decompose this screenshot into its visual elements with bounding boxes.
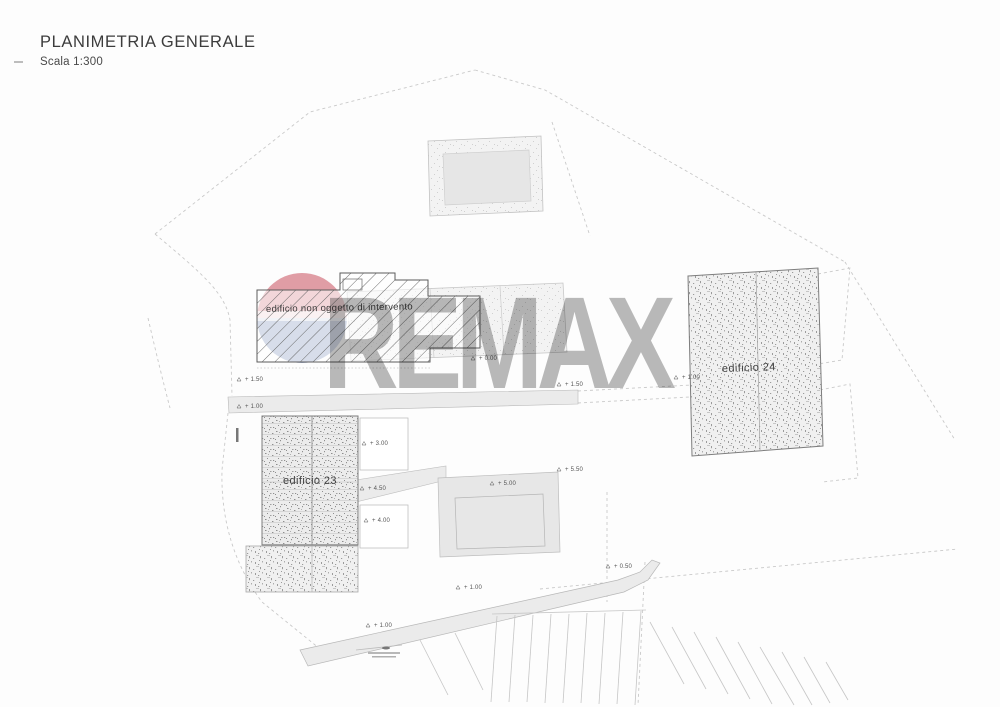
parcel-boundary-lines <box>148 70 958 705</box>
elevation-marker: + 0.50 <box>614 564 633 570</box>
elevation-marker: + 5.00 <box>498 481 517 487</box>
elevation-marker: + 1.00 <box>682 375 701 381</box>
elevation-marker-triangle <box>471 357 475 361</box>
elevation-marker: + 1.00 <box>374 623 393 629</box>
elevation-marker: + 1.00 <box>464 585 483 591</box>
elevation-marker: + 1.00 <box>245 404 264 410</box>
elevation-marker: + 4.50 <box>368 486 387 492</box>
building-edificio-23: edificio 23 <box>236 416 358 592</box>
elevation-marker-triangle <box>557 468 561 472</box>
elevation-marker-triangle <box>237 378 241 382</box>
elevation-marker-triangle <box>674 376 678 380</box>
building-edificio-24: edificio 24 <box>688 268 823 456</box>
elevation-marker-triangle <box>557 383 561 387</box>
elevation-marker: + 1.50 <box>565 382 584 388</box>
elevation-marker-triangle <box>456 586 460 590</box>
building-label: edificio 23 <box>283 475 337 487</box>
elevation-marker: + 4.00 <box>372 518 391 524</box>
diagonal-connector-band <box>356 466 446 502</box>
scanned-site-plan-page: PLANIMETRIA GENERALE Scala 1:300 <box>0 0 1000 707</box>
elevation-marker: + 0.00 <box>479 356 498 362</box>
elevation-marker: + 5.50 <box>565 467 584 473</box>
horizontal-path-band <box>228 390 578 413</box>
top-patio <box>428 136 543 216</box>
elevation-marker: + 3.00 <box>370 441 389 447</box>
elevation-marker-triangle <box>366 624 370 628</box>
building-label: edificio 24 <box>722 361 776 375</box>
site-plan-drawing: edificio non oggetto di intervento edifi… <box>0 0 1000 707</box>
elevation-marker: + 1.50 <box>245 377 264 383</box>
